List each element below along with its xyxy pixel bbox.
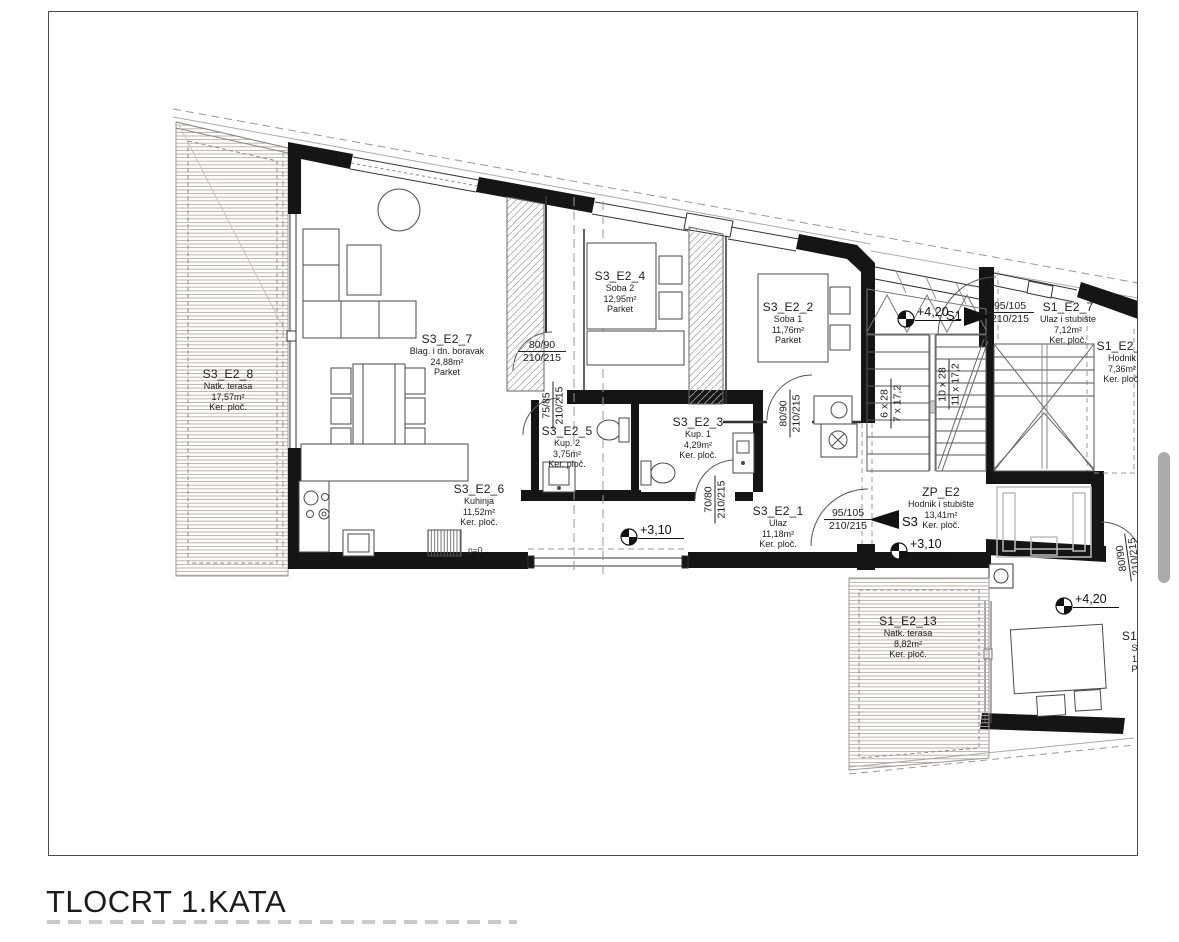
room-label-zp-e2: ZP_E2 Hodnik i stubište 13,41m² Ker. plo…	[866, 485, 1016, 531]
furniture-ulaz-appliances	[814, 396, 857, 457]
room-type: Soba 2	[545, 283, 695, 294]
room-floor: Ker. ploč.	[1047, 374, 1138, 385]
room-area: 17,57m²	[153, 392, 303, 403]
room-id: S1_E	[1062, 629, 1138, 643]
room-id: S1_E2_13	[833, 614, 983, 628]
room-floor: Ker. ploč.	[153, 402, 303, 413]
room-label-s1-clipped: S1_E So 15 Pa	[1062, 629, 1138, 675]
level-420-bottom: +4,20	[1073, 592, 1119, 608]
room-id: ZP_E2	[866, 485, 1016, 499]
terrace-left-hatch	[176, 122, 288, 576]
room-type: Hodnik	[1047, 353, 1138, 364]
stair-label-lower-flight: 6 x 28 7 x 17,2	[879, 369, 904, 439]
room-area: 8,82m²	[833, 639, 983, 650]
room-type: Hodnik i stubište	[866, 499, 1016, 510]
floor-plan-viewer: S3_E2_8 Natk. terasa 17,57m² Ker. ploč. …	[0, 0, 1179, 942]
room-id: S3_E2_2	[713, 300, 863, 314]
room-type: So	[1062, 643, 1138, 654]
room-type: Kuhinja	[404, 496, 554, 507]
room-type: Kup. 2	[492, 438, 642, 449]
room-label-s3-e2-7: S3_E2_7 Blag. i dn. boravak 24,88m² Park…	[372, 332, 522, 378]
room-floor: Ker. ploč.	[703, 539, 853, 550]
room-type: Natk. terasa	[153, 381, 303, 392]
door-height: 210/215	[791, 382, 803, 446]
room-label-s3-e2-8: S3_E2_8 Natk. terasa 17,57m² Ker. ploč.	[153, 367, 303, 413]
room-floor: Parket	[713, 335, 863, 346]
room-floor: Ker. ploč.	[492, 459, 642, 470]
level-310-right: +3,10	[908, 537, 954, 553]
door-label-kup2: 75/85 210/215	[541, 374, 566, 438]
furniture-living	[303, 189, 425, 454]
room-id: S3_E2_4	[545, 269, 695, 283]
room-area: 13,41m²	[866, 510, 1016, 521]
door-width: 95/105	[986, 300, 1034, 313]
room-area: 12,95m²	[545, 294, 695, 305]
room-area: 24,88m²	[372, 357, 522, 368]
door-width: 80/90	[778, 390, 791, 438]
drawing-title: TLOCRT 1.KATA	[46, 884, 286, 920]
room-type: Soba 1	[713, 314, 863, 325]
room-type: Blag. i dn. boravak	[372, 346, 522, 357]
room-area: 7,12m²	[993, 325, 1138, 336]
room-area: 7,36m²	[1047, 364, 1138, 375]
door-height: 210/215	[978, 313, 1042, 325]
stair-steps: 10 x 28	[937, 360, 950, 410]
column-with-drain	[989, 564, 1013, 588]
vertical-scrollbar-thumb[interactable]	[1158, 452, 1170, 583]
room-floor: Ker. ploč.	[833, 649, 983, 660]
room-label-s3-e2-5: S3_E2_5 Kup. 2 3,75m² Ker. ploč.	[492, 424, 642, 470]
room-floor: Parket	[545, 304, 695, 315]
room-floor: Ker. ploč.	[404, 517, 554, 528]
room-type: Kup. 1	[623, 429, 773, 440]
room-id: S3_E2_6	[404, 482, 554, 496]
room-label-s3-e2-3: S3_E2_3 Kup. 1 4,29m² Ker. ploč.	[623, 415, 773, 461]
room-id: S3_E2_5	[492, 424, 642, 438]
door-height: 210/215	[716, 468, 728, 532]
room-label-s1-e2-8: S1_E2_8 Hodnik 7,36m² Ker. ploč.	[1047, 339, 1138, 385]
room-type: Natk. terasa	[833, 628, 983, 639]
door-label-kup1: 70/80 210/215	[703, 468, 728, 532]
stair-label-upper-flight: 10 x 28 11 x 17,2	[937, 350, 962, 420]
door-label-soba1: 80/90 210/215	[778, 382, 803, 446]
room-id: S3_E2_7	[372, 332, 522, 346]
door-label-s1-entry: 95/105 210/215	[978, 300, 1042, 325]
room-floor: Pa	[1062, 664, 1138, 675]
room-floor: Parket	[372, 367, 522, 378]
kitchen-level-note: p=0	[468, 545, 482, 555]
room-area: 3,75m²	[492, 449, 642, 460]
room-id: S1_E2_8	[1047, 339, 1138, 353]
door-width: 70/80	[703, 476, 716, 524]
room-label-s1-e2-13: S1_E2_13 Natk. terasa 8,82m² Ker. ploč.	[833, 614, 983, 660]
cropped-text-tops	[47, 920, 517, 924]
stair-rise: 11 x 17,2	[950, 350, 962, 420]
door-label-s3-entry: 95/105 210/215	[816, 507, 880, 532]
room-label-s3-e2-4: S3_E2_4 Soba 2 12,95m² Parket	[545, 269, 695, 315]
room-floor: Ker. ploč.	[623, 450, 773, 461]
door-width: 75/85	[541, 382, 554, 430]
room-label-s3-e2-6: S3_E2_6 Kuhinja 11,52m² Ker. ploč.	[404, 482, 554, 528]
door-label-living: 80/90 210/215	[510, 339, 574, 364]
room-floor: Ker. ploč.	[866, 520, 1016, 531]
door-height: 210/215	[510, 352, 574, 364]
door-height: 210/215	[816, 520, 880, 532]
door-width: 95/105	[824, 507, 872, 520]
drawing-sheet: S3_E2_8 Natk. terasa 17,57m² Ker. ploč. …	[48, 11, 1138, 856]
stair-steps: 6 x 28	[879, 379, 892, 429]
door-width: 80/90	[518, 339, 566, 352]
room-id: S3_E2_8	[153, 367, 303, 381]
room-area: 11,52m²	[404, 507, 554, 518]
room-area: 4,29m²	[623, 440, 773, 451]
section-marker-s3: S3	[902, 514, 918, 529]
stair-rise: 7 x 17,2	[892, 369, 904, 439]
section-marker-s1: S1	[946, 308, 962, 323]
level-310-left: +3,10	[638, 523, 684, 539]
door-height: 210/215	[554, 374, 566, 438]
room-area: 11,76m²	[713, 325, 863, 336]
room-id: S3_E2_3	[623, 415, 773, 429]
room-label-s3-e2-2: S3_E2_2 Soba 1 11,76m² Parket	[713, 300, 863, 346]
room-area: 15	[1062, 654, 1138, 665]
